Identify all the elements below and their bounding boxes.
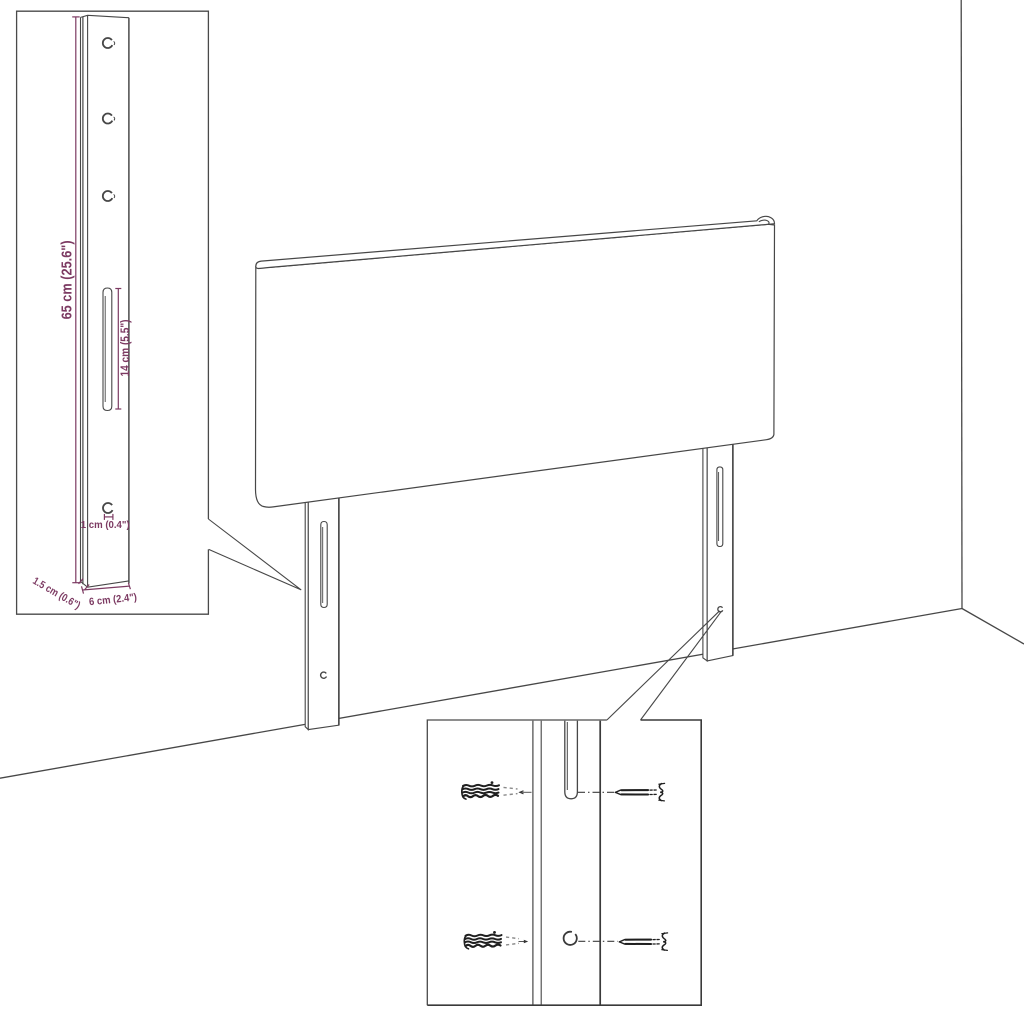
- svg-text:1 cm (0.4"): 1 cm (0.4"): [81, 519, 130, 531]
- svg-text:14 cm (5.5"): 14 cm (5.5"): [118, 320, 132, 377]
- svg-text:65 cm (25.6"): 65 cm (25.6"): [60, 240, 76, 319]
